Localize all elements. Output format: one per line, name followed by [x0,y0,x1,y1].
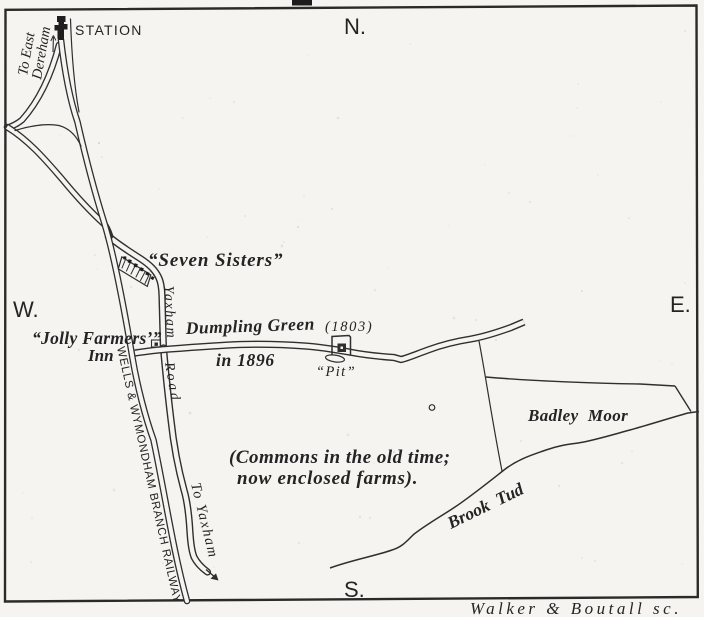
svg-text:“Seven Sisters”: “Seven Sisters” [148,250,283,271]
svg-text:STATION: STATION [75,22,143,38]
svg-text:(Commons in the old time;: (Commons in the old time; [229,447,451,468]
svg-text:W.: W. [13,297,39,322]
svg-text:E.: E. [670,292,691,317]
svg-text:now enclosed farms).: now enclosed farms). [237,468,418,489]
svg-text:“Pit”: “Pit” [316,364,356,380]
svg-text:Walker & Boutall sc.: Walker & Boutall sc. [470,599,682,617]
svg-text:“Jolly Farmers’”: “Jolly Farmers’” [32,328,162,348]
svg-text:(1803): (1803) [325,319,373,335]
svg-text:Yaxham: Yaxham [161,285,179,339]
svg-text:in 1896: in 1896 [216,350,275,370]
svg-text:Badley Moor: Badley Moor [527,406,628,425]
svg-text:N.: N. [344,14,366,39]
svg-text:Inn: Inn [87,346,114,365]
svg-text:S.: S. [344,577,365,602]
